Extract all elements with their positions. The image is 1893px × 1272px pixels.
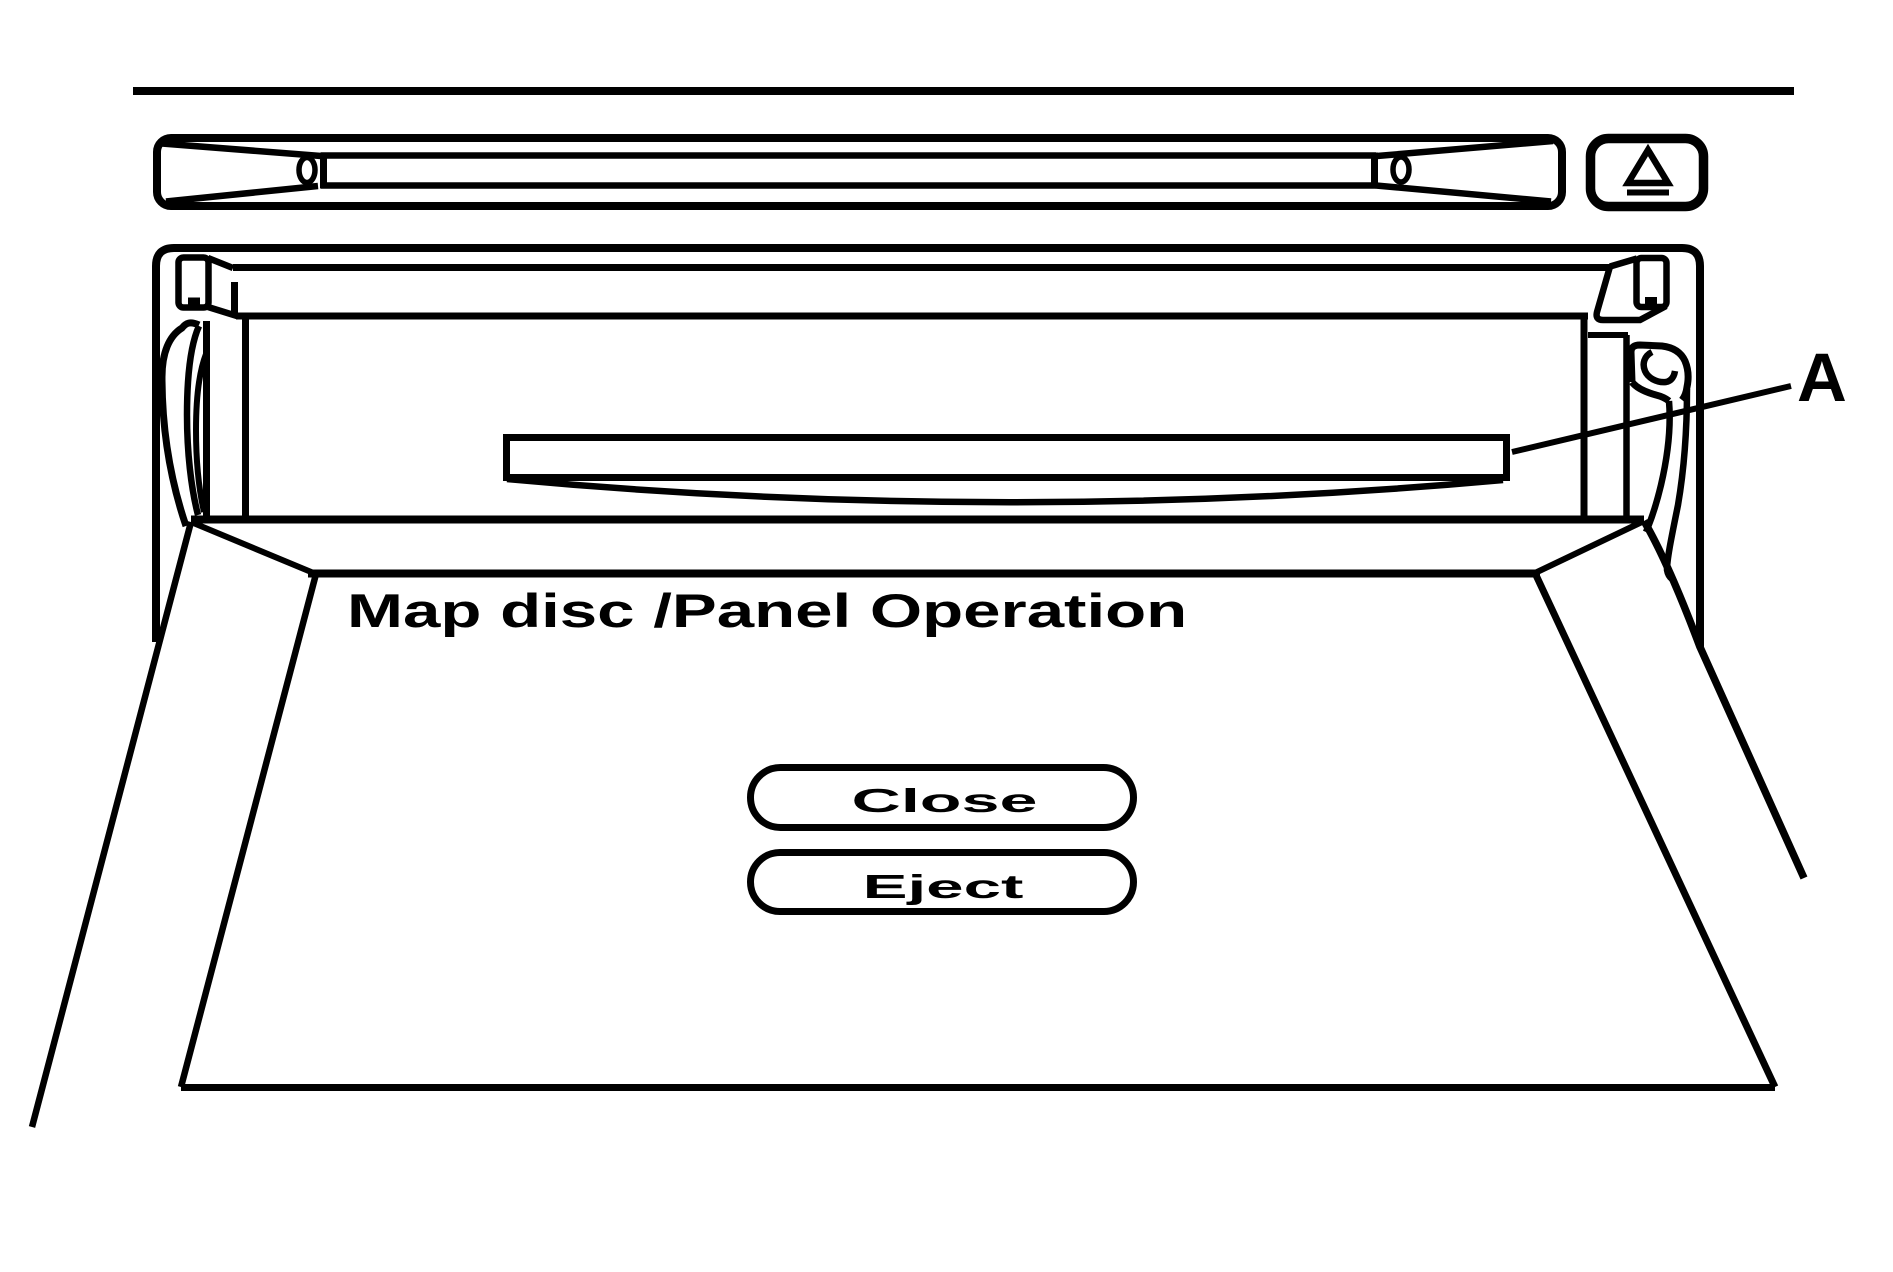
svg-text:A: A [1797,339,1847,416]
svg-text:Map disc /Panel Operation: Map disc /Panel Operation [347,586,1187,638]
svg-text:Eject: Eject [863,869,1024,906]
svg-text:Close: Close [852,782,1038,819]
